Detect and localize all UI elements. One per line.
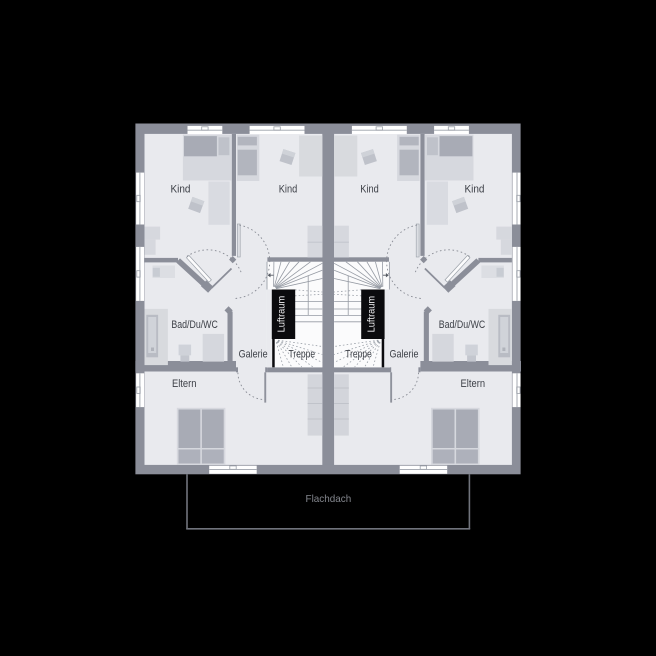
- svg-text:Bad/Du/WC: Bad/Du/WC: [171, 319, 218, 331]
- svg-text:Treppe: Treppe: [289, 349, 316, 361]
- svg-text:Luftraum: Luftraum: [367, 296, 378, 333]
- svg-text:Kind: Kind: [171, 184, 191, 196]
- svg-text:Treppe: Treppe: [345, 349, 372, 361]
- svg-text:Galerie: Galerie: [239, 349, 268, 361]
- svg-text:Bad/Du/WC: Bad/Du/WC: [439, 319, 486, 331]
- svg-text:Eltern: Eltern: [461, 378, 486, 390]
- svg-text:Kind: Kind: [360, 184, 379, 196]
- svg-text:Eltern: Eltern: [172, 378, 197, 390]
- svg-text:Galerie: Galerie: [390, 349, 419, 361]
- svg-text:Flachdach: Flachdach: [306, 493, 352, 505]
- svg-text:Kind: Kind: [279, 184, 298, 196]
- svg-text:Kind: Kind: [465, 184, 485, 196]
- svg-text:Luftraum: Luftraum: [277, 296, 288, 333]
